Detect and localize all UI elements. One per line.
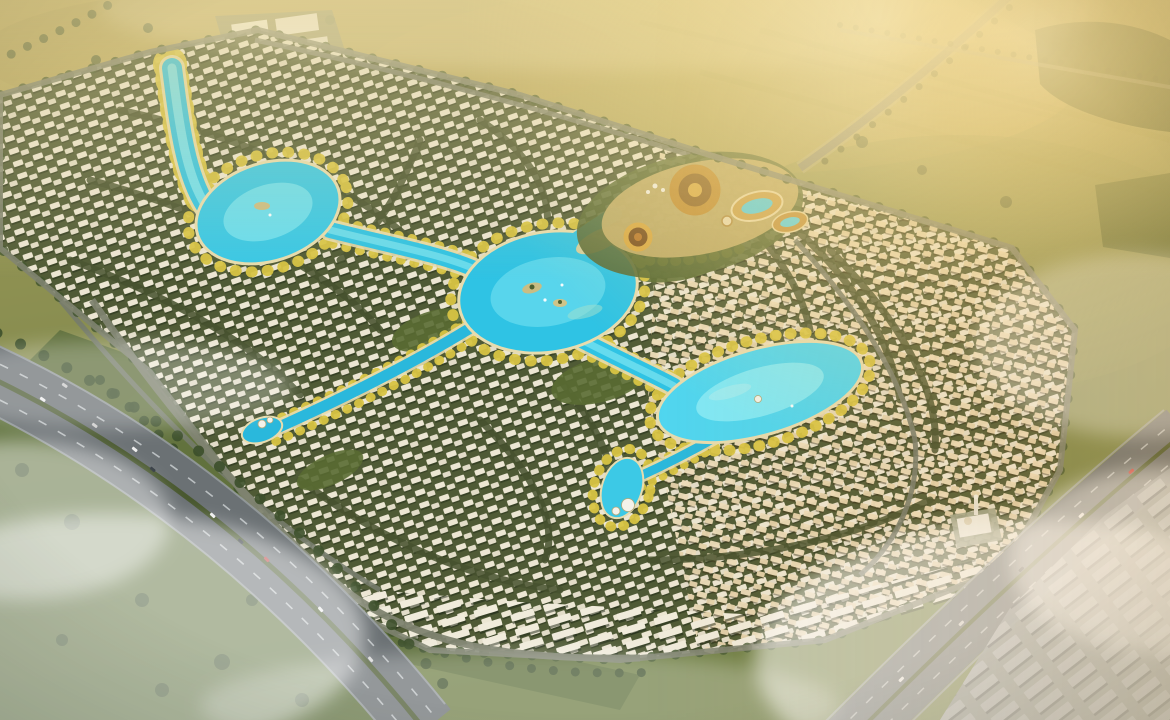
sun-glow [0, 0, 1170, 720]
aerial-masterplan-scene [0, 0, 1170, 720]
aerial-render-viewport [0, 0, 1170, 720]
